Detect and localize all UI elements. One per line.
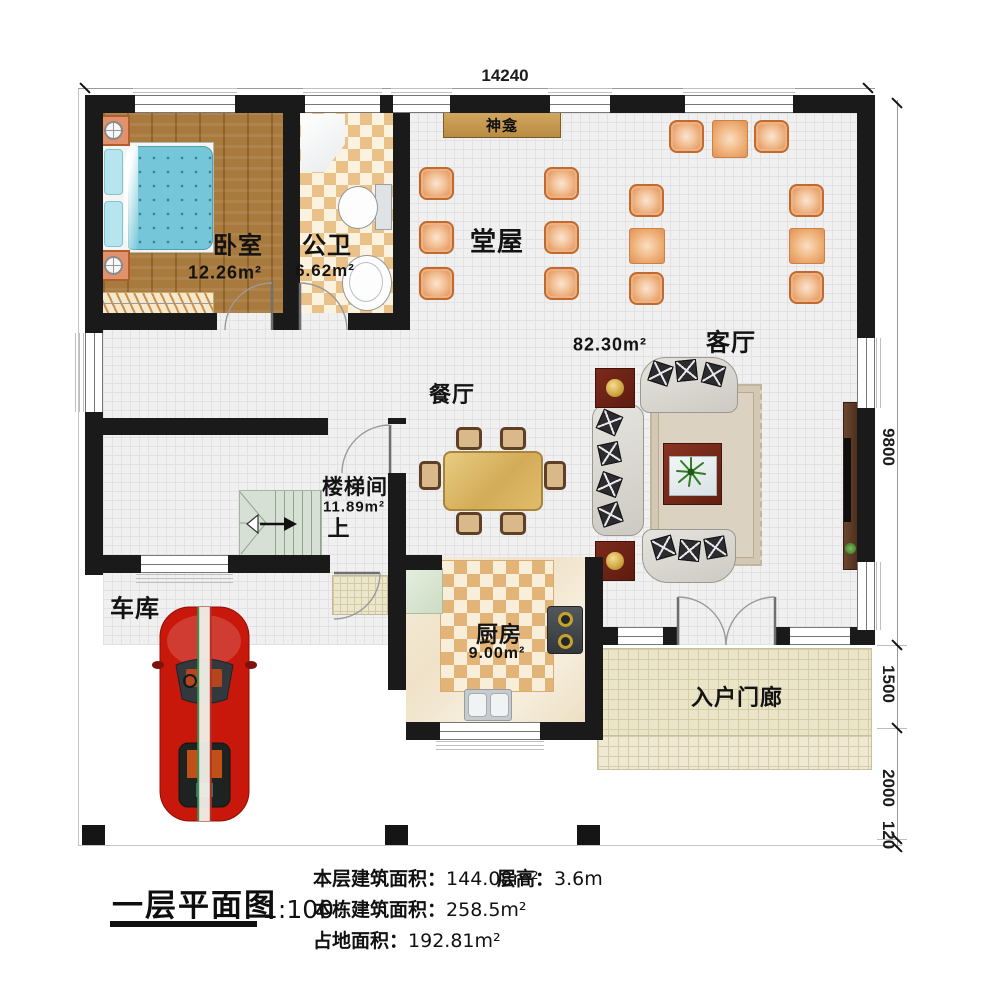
stairwell-up-label: 上 [327,511,350,543]
info-label: 占地面积： [313,931,408,952]
info-row-3: 占地面积：192.81m² [313,926,501,953]
living-label: 客厅 [706,323,756,358]
door-arc-layer [0,0,1000,990]
porch-label: 入户门廊 [691,680,783,712]
page-title: 一层平面图 [112,880,277,925]
bedroom-area: 12.26m² [188,263,262,284]
stairwell-label: 楼梯间 [322,471,388,501]
kitchen-area: 9.00m² [469,645,526,663]
living-area: 82.30m² [573,335,647,356]
info-row-height: 层高：3.6m [497,864,603,891]
info-label: 层高： [497,869,554,890]
hall-label: 堂屋 [470,222,524,259]
bedroom-label: 卧室 [213,226,263,261]
bathroom-area: 6.62m² [295,261,355,281]
info-value: 258.5m² [446,899,527,921]
info-row-2: 本栋建筑面积：258.5m² [313,895,527,922]
garage-label: 车库 [110,589,160,624]
info-value: 3.6m [554,868,603,890]
floor-plan-page: 14240 9800 1500 2000 120 神龛 [0,0,1000,990]
info-value: 192.81m² [408,930,501,952]
info-label: 本层建筑面积： [313,869,446,890]
dining-label: 餐厅 [429,377,475,409]
info-label: 本栋建筑面积： [313,900,446,921]
title-underline [110,921,257,927]
bathroom-label: 公卫 [302,226,352,261]
